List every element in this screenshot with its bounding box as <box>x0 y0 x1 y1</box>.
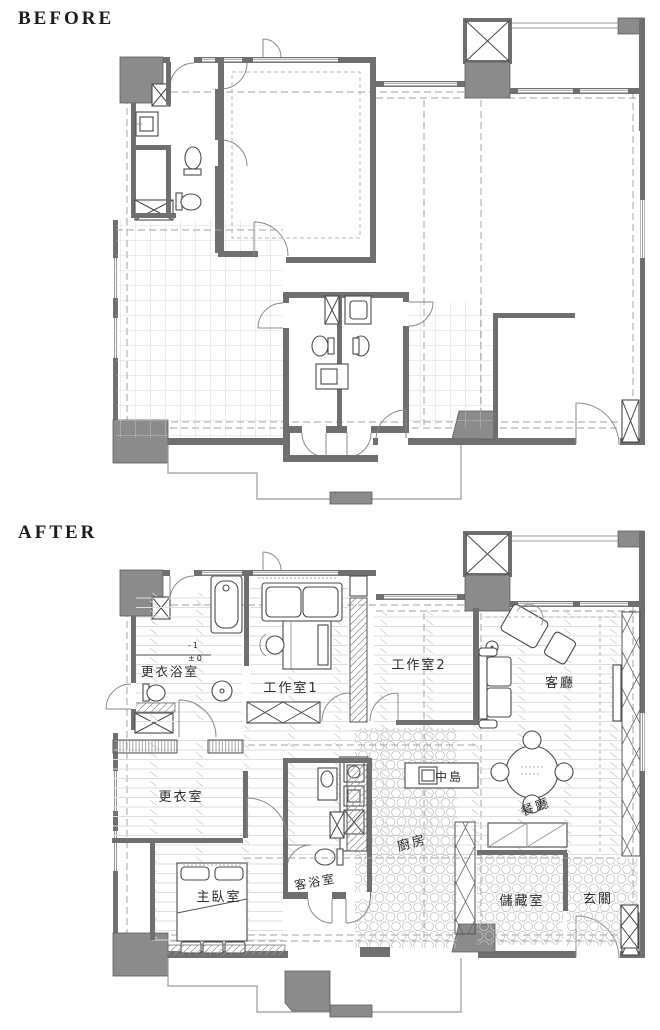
room-label-dressing-bathroom: 更衣浴室 <box>141 664 199 679</box>
room-label-master-bedroom: 主臥室 <box>196 889 241 905</box>
room-label-island: 中島 <box>435 769 463 784</box>
floorplan-drawing: 更衣浴室工作室1工作室2客廳更衣室中島餐廳廚房主臥室客浴室儲藏室玄關-1±0 <box>0 0 660 1030</box>
before-plan <box>116 57 575 462</box>
room-label-level-zero: ±0 <box>188 654 204 663</box>
room-label-storage-room: 儲藏室 <box>499 893 544 909</box>
room-label-studio-1: 工作室1 <box>263 680 318 696</box>
room-label-level-minus-1: -1 <box>188 641 200 650</box>
before-bathrooms <box>258 292 433 457</box>
floorplan-page: BEFORE AFTER <box>0 0 660 1030</box>
room-label-living-room: 客廳 <box>545 675 575 691</box>
room-label-guest-bathroom: 客浴室 <box>293 871 337 893</box>
room-label-entrance: 玄關 <box>583 892 613 907</box>
room-label-studio-2: 工作室2 <box>391 657 446 673</box>
room-label-dressing-room: 更衣室 <box>158 789 203 805</box>
